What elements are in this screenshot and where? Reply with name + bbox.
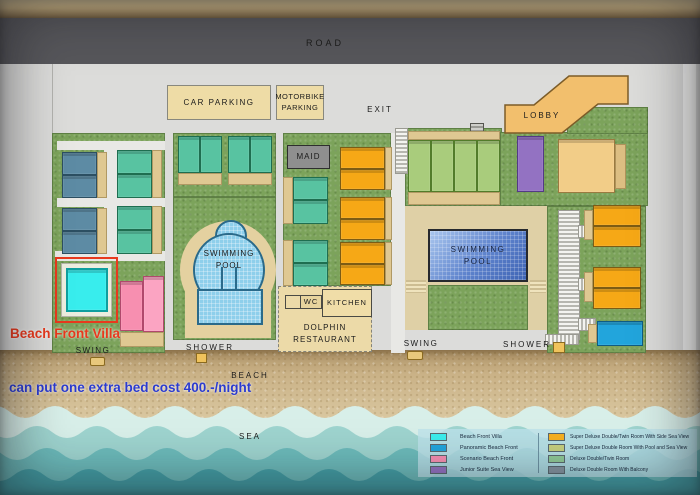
shower-left-stall bbox=[196, 353, 207, 363]
legend-label: Super Deluxe Double/Twin Room With Side … bbox=[570, 434, 689, 440]
porch bbox=[408, 131, 500, 140]
porch bbox=[120, 332, 164, 347]
building-deluxe-twin bbox=[293, 200, 328, 224]
stepping-stones bbox=[395, 128, 408, 174]
swing-left-label: SWING bbox=[72, 345, 114, 357]
building-deluxe-twin bbox=[178, 136, 200, 173]
swing-right-seat bbox=[407, 351, 423, 360]
kitchen-room: KITCHEN bbox=[322, 289, 372, 317]
shower-right-label: SHOWER bbox=[503, 339, 551, 351]
shower-right-stall bbox=[553, 342, 565, 353]
legend-swatch-junior-suite bbox=[430, 466, 447, 474]
car-parking: CAR PARKING bbox=[167, 85, 271, 120]
shower-left-label: SHOWER bbox=[185, 342, 235, 354]
building-panoramic-beach-front bbox=[597, 321, 643, 346]
building-deluxe-twin bbox=[117, 230, 152, 254]
legend-label: Panoramic Beach Front bbox=[460, 445, 518, 451]
legend-swatch-deluxe-twin bbox=[548, 455, 565, 463]
building-super-deluxe-side-sea bbox=[340, 219, 385, 240]
swing-right-label: SWING bbox=[400, 338, 442, 350]
pool-steps bbox=[530, 280, 546, 293]
building-junior-suite bbox=[517, 136, 544, 192]
building-super-deluxe-side-sea bbox=[593, 205, 641, 226]
kitchen-label: KITCHEN bbox=[327, 298, 367, 309]
maid-label: MAID bbox=[297, 151, 321, 163]
building-super-deluxe-pool-sea bbox=[454, 140, 477, 192]
villa-highlight-frame bbox=[55, 257, 118, 323]
porch bbox=[408, 192, 500, 205]
building-balcony-room bbox=[62, 152, 97, 175]
porch bbox=[152, 150, 162, 198]
motorbike-parking-label: MOTORBIKE PARKING bbox=[275, 92, 324, 112]
porch bbox=[97, 208, 107, 254]
building-deluxe-twin bbox=[117, 150, 152, 174]
legend-swatch-panoramic bbox=[430, 444, 447, 452]
building-super-deluxe-side-sea bbox=[593, 288, 641, 309]
building-super-deluxe-pool-sea bbox=[431, 140, 454, 192]
legend-label: Scenario Beach Front bbox=[460, 456, 513, 462]
legend-label: Deluxe Double Room With Balcony bbox=[570, 467, 648, 473]
road-label: ROAD bbox=[290, 37, 360, 50]
legend-swatch-super-deluxe-side-sea bbox=[548, 433, 565, 441]
pool-right-label: SWIMMING POOL bbox=[451, 244, 506, 267]
building-tan-large bbox=[558, 139, 615, 193]
porch bbox=[584, 210, 593, 240]
building-super-deluxe-side-sea bbox=[340, 169, 385, 190]
porch bbox=[97, 152, 107, 198]
legend: Beach Front Villa Panoramic Beach Front … bbox=[418, 429, 697, 477]
porch bbox=[152, 206, 162, 254]
porch bbox=[385, 147, 392, 190]
dolphin-restaurant-label: DOLPHIN RESTAURANT bbox=[280, 322, 370, 345]
extra-bed-annotation: can put one extra bed cost 400.-/night bbox=[9, 380, 251, 395]
pool-steps bbox=[406, 280, 426, 293]
right-walkway bbox=[683, 64, 696, 355]
porch bbox=[385, 242, 392, 285]
porch bbox=[385, 197, 392, 240]
building-deluxe-twin bbox=[293, 240, 328, 263]
porch bbox=[588, 324, 597, 343]
swimming-pool-right: SWIMMING POOL bbox=[428, 229, 528, 282]
building-deluxe-twin bbox=[117, 174, 152, 198]
sea-label: SEA bbox=[225, 431, 275, 443]
grass-pool-right bbox=[428, 285, 528, 330]
porch bbox=[584, 272, 593, 302]
building-deluxe-twin bbox=[293, 177, 328, 200]
legend-swatch-scenario bbox=[430, 455, 447, 463]
legend-label: Deluxe Double/Twin Room bbox=[570, 456, 629, 462]
motorbike-parking: MOTORBIKE PARKING bbox=[276, 85, 324, 120]
lobby-building bbox=[503, 73, 631, 135]
building-deluxe-twin bbox=[228, 136, 250, 173]
resort-map: ROAD CAR PARKING MOTORBIKE PARKING EXIT … bbox=[0, 0, 700, 495]
maid-room: MAID bbox=[287, 145, 330, 169]
building-deluxe-twin bbox=[200, 136, 222, 173]
building-super-deluxe-side-sea bbox=[340, 242, 385, 264]
exit-label: EXIT bbox=[355, 104, 405, 116]
legend-swatch-beach-front-villa bbox=[430, 433, 447, 441]
building-super-deluxe-side-sea bbox=[340, 264, 385, 285]
top-wood-strip bbox=[0, 0, 700, 18]
porch bbox=[228, 173, 272, 185]
legend-label: Junior Suite Sea View bbox=[460, 467, 514, 473]
legend-swatch-super-deluxe-pool-sea bbox=[548, 444, 565, 452]
building-super-deluxe-pool-sea bbox=[477, 140, 500, 192]
porch bbox=[178, 173, 222, 185]
building-scenario-beach-front bbox=[143, 276, 164, 332]
lobby-label: LOBBY bbox=[514, 110, 570, 122]
legend-swatch-deluxe-balcony bbox=[548, 466, 565, 474]
car-parking-label: CAR PARKING bbox=[183, 97, 254, 109]
villa-annotation: Beach Front Villa bbox=[10, 326, 120, 341]
building-deluxe-twin bbox=[117, 206, 152, 230]
swing-left-seat bbox=[90, 357, 105, 366]
wc-room: WC bbox=[300, 295, 322, 309]
legend-label: Beach Front Villa bbox=[460, 434, 502, 440]
building-super-deluxe-pool-sea bbox=[408, 140, 431, 192]
building-deluxe-twin bbox=[250, 136, 272, 173]
building-super-deluxe-side-sea bbox=[593, 267, 641, 288]
porch bbox=[283, 177, 293, 224]
wc-label: WC bbox=[304, 297, 319, 308]
kids-pool bbox=[197, 289, 263, 325]
building-super-deluxe-side-sea bbox=[340, 147, 385, 169]
building-super-deluxe-side-sea bbox=[593, 226, 641, 247]
building-tan-wing bbox=[615, 144, 626, 189]
pool-left-label: SWIMMING POOL bbox=[190, 248, 268, 271]
building-scenario-beach-front bbox=[120, 281, 143, 331]
legend-divider bbox=[538, 433, 539, 473]
building-deluxe-twin bbox=[293, 263, 328, 286]
legend-label: Super Deluxe Double Room With Pool and S… bbox=[570, 445, 687, 451]
building-balcony-room bbox=[62, 231, 97, 254]
porch bbox=[283, 240, 293, 286]
stepping-stones bbox=[558, 210, 580, 340]
building-balcony-room bbox=[62, 175, 97, 198]
building-super-deluxe-side-sea bbox=[340, 197, 385, 219]
building-balcony-room bbox=[62, 208, 97, 231]
